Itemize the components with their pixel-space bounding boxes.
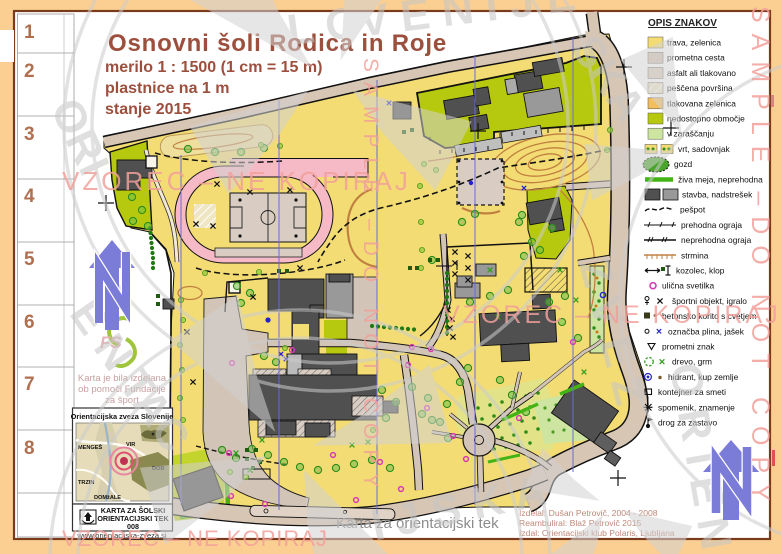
svg-text:stanje 2015: stanje 2015 [105, 101, 191, 118]
svg-text:neprehodna ograja: neprehodna ograja [681, 235, 752, 245]
svg-text:6: 6 [24, 312, 35, 333]
svg-text:peščena površina: peščena površina [667, 83, 733, 93]
svg-text:MENGEŠ: MENGEŠ [78, 443, 103, 451]
svg-text:stavba, nadstrešek: stavba, nadstrešek [682, 190, 753, 200]
svg-text:8: 8 [24, 438, 35, 459]
svg-text:DOMžALE: DOMžALE [94, 495, 121, 501]
svg-text:trava, zelenica: trava, zelenica [667, 38, 721, 48]
svg-text:SAMPLE –DO NOT COPY: SAMPLE –DO NOT COPY [359, 58, 382, 497]
svg-text:prometna cesta: prometna cesta [667, 53, 725, 63]
svg-text:prometni znak: prometni znak [662, 342, 715, 352]
svg-text:2: 2 [24, 61, 35, 82]
svg-text:merilo 1 : 1500 (1 cm = 15 m): merilo 1 : 1500 (1 cm = 15 m) [105, 59, 322, 76]
svg-text:VZOREC – NE KOPIRAJ: VZOREC – NE KOPIRAJ [62, 526, 328, 551]
svg-text:v zaraščanju: v zaraščanju [667, 129, 714, 139]
svg-text:strmina: strmina [681, 250, 709, 260]
svg-text:prehodna ograja: prehodna ograja [681, 220, 742, 230]
svg-text:asfalt ali tlakovano: asfalt ali tlakovano [667, 68, 736, 78]
svg-text:ulična svetilka: ulična svetilka [662, 281, 714, 291]
svg-text:Reambuliral: Blaž Petrovič 201: Reambuliral: Blaž Petrovič 2015 [519, 518, 642, 528]
svg-text:gozd: gozd [674, 159, 693, 169]
svg-text:plastnice na 1 m: plastnice na 1 m [105, 80, 230, 97]
svg-text:VZOREC – NE KOPIRAJ: VZOREC – NE KOPIRAJ [62, 166, 411, 196]
svg-text:VIR: VIR [126, 442, 135, 448]
svg-text:4: 4 [24, 186, 35, 207]
svg-text:3: 3 [24, 124, 35, 145]
svg-text:1: 1 [24, 22, 35, 43]
svg-text:SAMPLE –DO NOT COPY: SAMPLE –DO NOT COPY [746, 6, 774, 512]
svg-text:VZOREC – NE KOPIRAJ: VZOREC – NE KOPIRAJ [443, 301, 781, 329]
svg-text:7: 7 [24, 374, 35, 395]
svg-text:pešpot: pešpot [680, 205, 706, 215]
svg-text:vrt, sadovnjak: vrt, sadovnjak [678, 144, 730, 154]
svg-text:5: 5 [24, 249, 35, 270]
svg-text:kozolec, klop: kozolec, klop [676, 266, 725, 276]
svg-text:OPIS ZNAKOV: OPIS ZNAKOV [648, 18, 717, 29]
